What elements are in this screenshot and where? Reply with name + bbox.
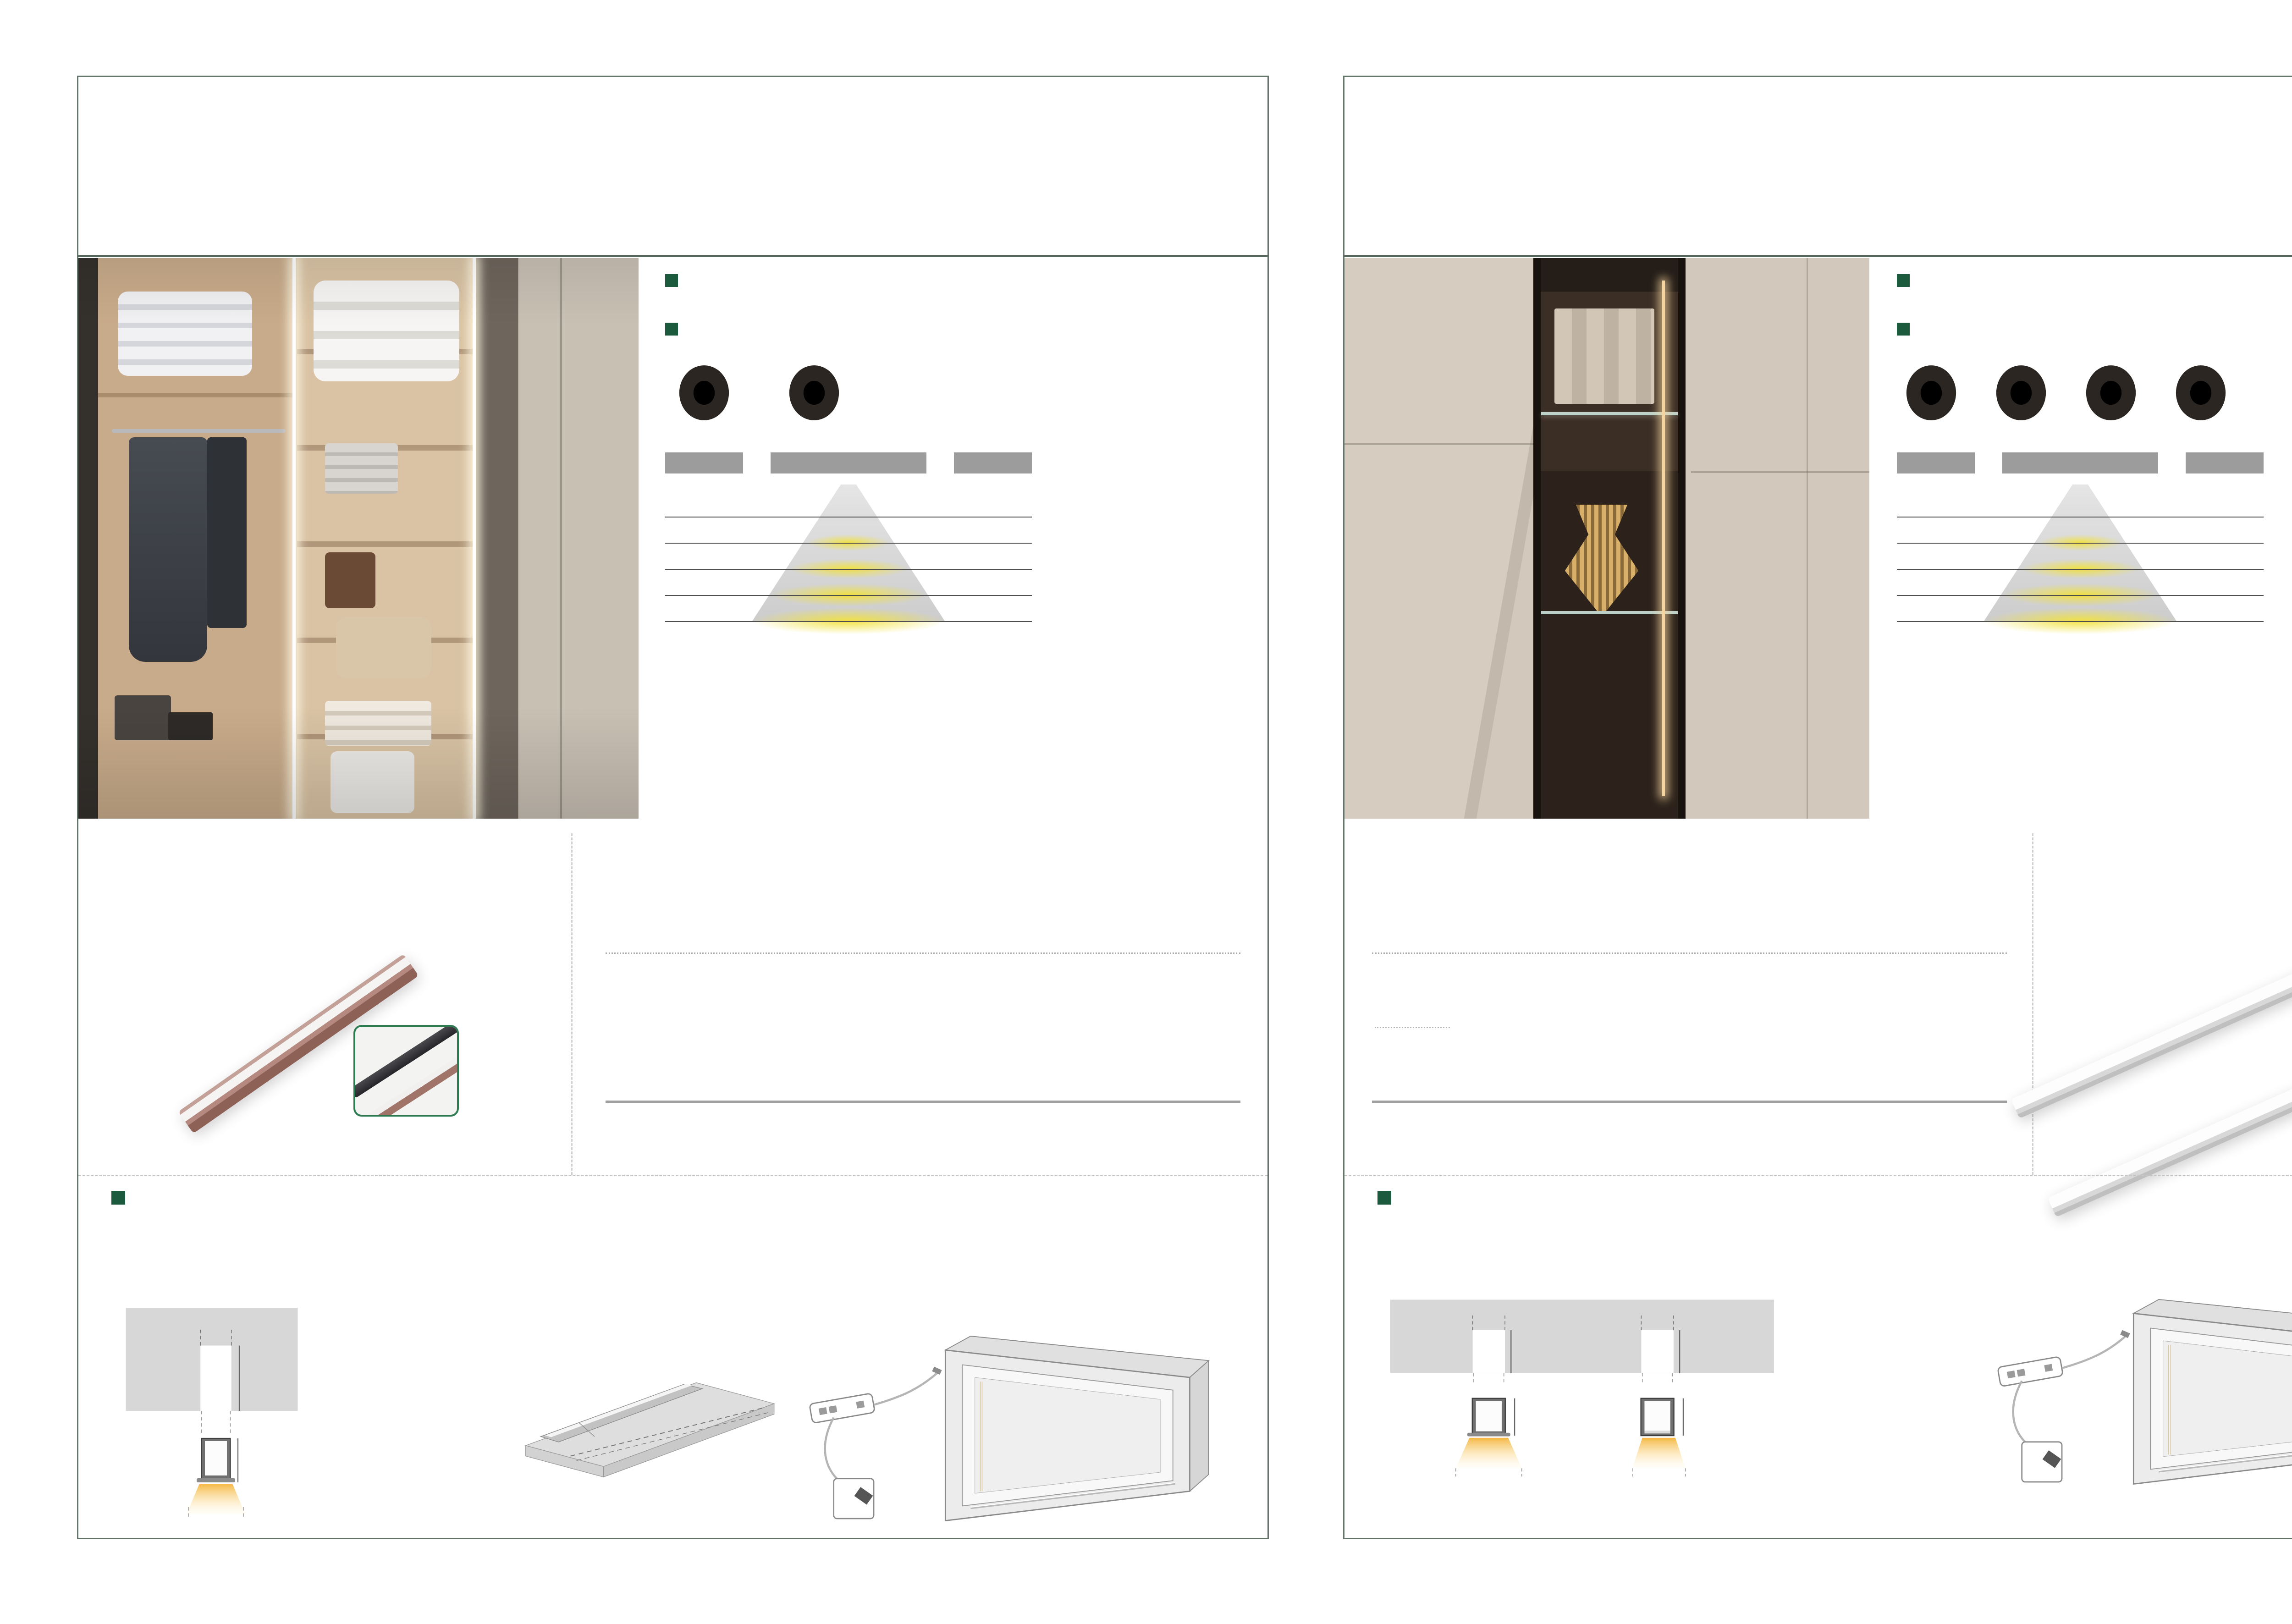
warm-white-icon [788,365,841,421]
header-install [1040,939,1131,942]
color-temp-option [2166,365,2235,429]
chart-row [665,543,1032,569]
model-list [1375,999,1450,1056]
product-photo [147,916,514,1173]
table-header-row [1372,939,2007,942]
led-bar-29a2 [2011,913,2292,1119]
chart-row [1897,543,2264,569]
beam-angle-badge [771,452,926,473]
kelvin-badge [1897,452,1975,473]
header-size [686,939,810,942]
light-distribution-chart [1897,452,2264,623]
color-temp-option [2077,365,2145,429]
header-surface [1131,939,1240,942]
page-left [77,76,1269,1539]
header-switch [1715,939,1807,942]
page-right-header [1344,77,2292,257]
beam-angle-badge [2002,452,2158,473]
header-model [1372,939,1453,942]
distance-badge [2186,452,2264,473]
features-heading [665,274,1247,287]
page-right [1343,76,2292,1539]
table-header-row [606,939,1240,942]
product-photo [2060,897,2292,1168]
cabinet-mount-diagram [1982,1273,2292,1492]
color-temp-option [775,365,853,429]
header-surface [1898,939,2007,942]
section-divider [1344,1175,2292,1176]
color-temp-option [1987,365,2055,429]
led-strip-light [1662,281,1665,796]
header-size [1453,939,1576,942]
header-cct [876,939,949,942]
features-heading [1897,274,2292,287]
chart-row [665,595,1032,621]
vertical-divider [2032,833,2033,1175]
vertical-divider [571,833,573,1175]
color-temp-icons [665,365,1247,429]
header-cct [1642,939,1715,942]
glass-shelf [1541,611,1678,614]
chart-row [665,569,1032,595]
square-bullet-icon [1897,274,1910,287]
features-panel [1897,274,2292,623]
square-bullet-icon [665,323,678,336]
chart-row [1897,595,2264,621]
lifestyle-photo-cabinet [1344,258,1869,819]
lifestyle-photo-wardrobe [78,258,639,819]
chart-baseline [1897,621,2264,622]
color-temp-option [1897,365,1966,429]
square-bullet-icon [1377,1191,1391,1205]
install-heading [111,1191,135,1205]
chart-row [1897,517,2264,543]
chart-header [1897,452,2264,473]
model-divider [1375,1027,1450,1028]
table-bottom-rule [1372,1101,2007,1103]
glass-shelf [1541,412,1678,415]
panel-seam [1691,471,1869,473]
panel-seam [1807,258,1808,819]
distance-badge [954,452,1032,473]
square-bullet-icon [111,1191,125,1205]
section-divider [78,1175,1267,1176]
panel-seam [1344,443,1533,445]
spec-table [606,939,1240,1103]
scope-heading [665,323,1247,336]
cabinet-mount-diagram [793,1310,1215,1529]
warm-white-icon [2174,365,2227,421]
header-power [1576,939,1642,942]
chart-baseline [665,621,1032,622]
color-temp-option [665,365,743,429]
table-data-row [1372,954,2007,1101]
header-install [1807,939,1898,942]
chart-body [1897,484,2264,623]
groove-iso-diagram [505,1347,798,1503]
header-model [606,939,686,942]
pen-comparison-inset [353,1025,459,1117]
photo-shading [78,258,639,819]
page-left-header [78,77,1267,257]
square-bullet-icon [1897,323,1910,336]
square-bullet-icon [665,274,678,287]
light-distribution-chart [665,452,1032,623]
kelvin-badge [665,452,743,473]
table-data-row [606,954,1240,1101]
books [1554,308,1654,404]
scope-heading [1897,323,2292,336]
table-bottom-rule [606,1101,1240,1103]
chart-row [665,517,1032,543]
cell-model [1372,973,1453,1082]
cross-section-diagram [120,1287,312,1528]
pen-image [353,1025,459,1098]
install-heading [1377,1191,1401,1205]
ice-blue-icon [1905,365,1958,421]
color-temp-icons [1897,365,2292,429]
header-power [810,939,876,942]
chart-header [665,452,1032,473]
header-switch [949,939,1040,942]
cool-white-icon [2084,365,2138,421]
catalog-spread [0,0,2292,1624]
chart-row [1897,569,2264,595]
features-panel [665,274,1247,623]
spec-table [1372,939,2007,1103]
chart-body [665,484,1032,623]
white-icon [1994,365,2048,421]
cool-white-icon [678,365,731,421]
double-cross-section-diagram [1381,1287,1794,1517]
